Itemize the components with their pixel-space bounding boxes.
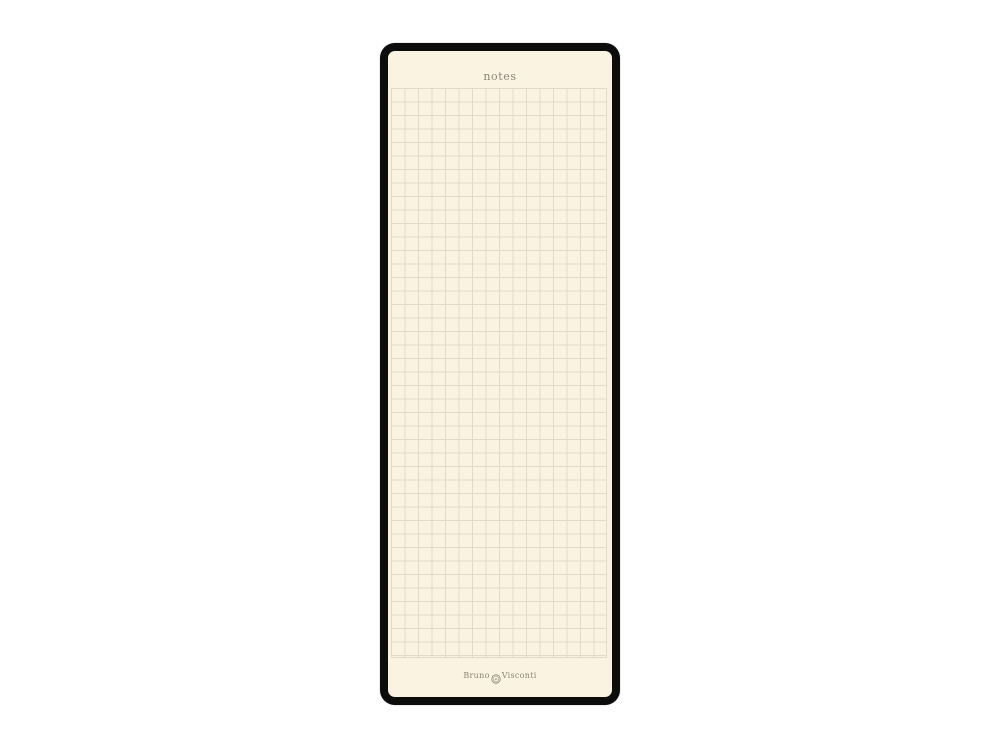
product-photo-stage: notes Bruno Visconti: [0, 0, 1000, 750]
brand-logo: Bruno Visconti: [388, 670, 612, 682]
squared-grid-paper: [391, 88, 607, 658]
brand-monogram-icon: [491, 669, 501, 679]
notepad-paper-sheet: notes Bruno Visconti: [388, 51, 612, 697]
brand-name-left: Bruno: [463, 671, 489, 681]
brand-name-right: Visconti: [502, 671, 537, 681]
notepad-cover: notes Bruno Visconti: [380, 43, 620, 705]
notes-page-title: notes: [388, 71, 612, 83]
